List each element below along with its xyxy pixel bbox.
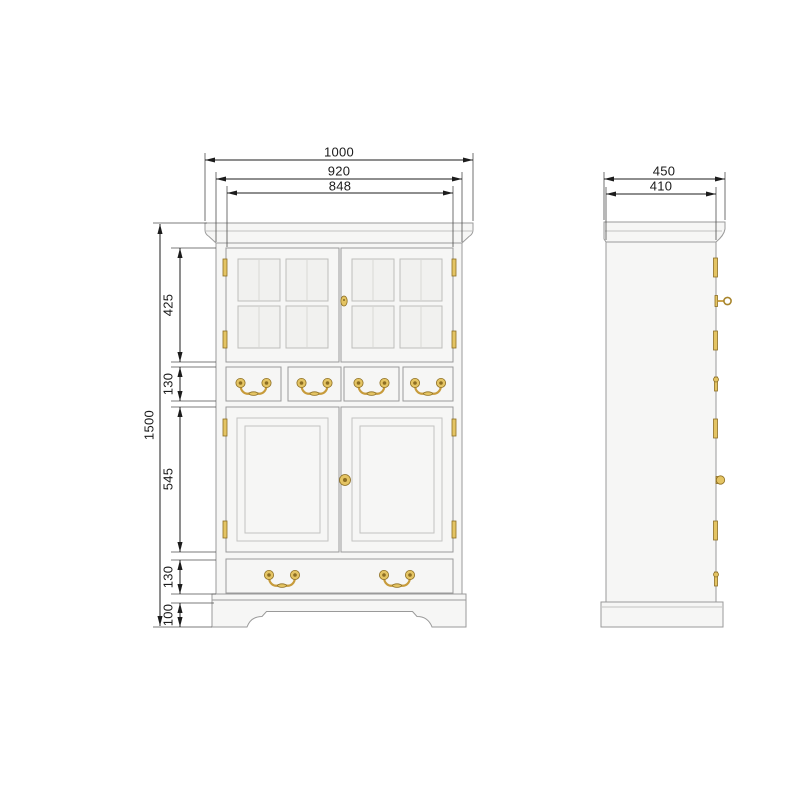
dim-label-carcass-width: 920 (328, 164, 351, 179)
dim-label-overall-height: 1500 (142, 410, 157, 440)
bracket-feet-front (212, 600, 466, 627)
dim-label-lower-door-height: 545 (161, 468, 176, 491)
dim-label-carcass-depth: 410 (650, 179, 673, 194)
dim-label-opening-width: 848 (329, 179, 352, 194)
carcass-side (606, 242, 716, 602)
dim-label-overall-width: 1000 (324, 145, 354, 160)
dim-label-bottom-drawer-height: 130 (161, 566, 176, 589)
dim-label-plinth-height: 100 (161, 604, 176, 627)
plinth-molding-front (212, 594, 466, 600)
cabinet-drawing (0, 0, 800, 800)
dim-label-overall-depth: 450 (653, 164, 676, 179)
door-knob-center (343, 478, 347, 482)
panel-door-left (226, 407, 339, 552)
cornice-front (205, 223, 473, 243)
dim-label-top-door-height: 425 (161, 294, 176, 317)
key-plate (715, 296, 718, 307)
front-view (205, 223, 473, 627)
key-bow (724, 297, 731, 304)
escutcheon (341, 296, 347, 306)
technical-drawing-canvas: 1000 920 848 450 410 1500 425 130 545 13… (0, 0, 800, 800)
drawer-row (226, 367, 453, 401)
side-view (601, 222, 731, 627)
panel-door-right (341, 407, 453, 552)
knob-side (716, 476, 724, 484)
cornice-side (604, 222, 725, 242)
dim-label-drawer-height: 130 (161, 373, 176, 396)
bottom-drawer (226, 559, 453, 593)
plinth-side (601, 602, 723, 627)
keyhole (343, 299, 345, 301)
